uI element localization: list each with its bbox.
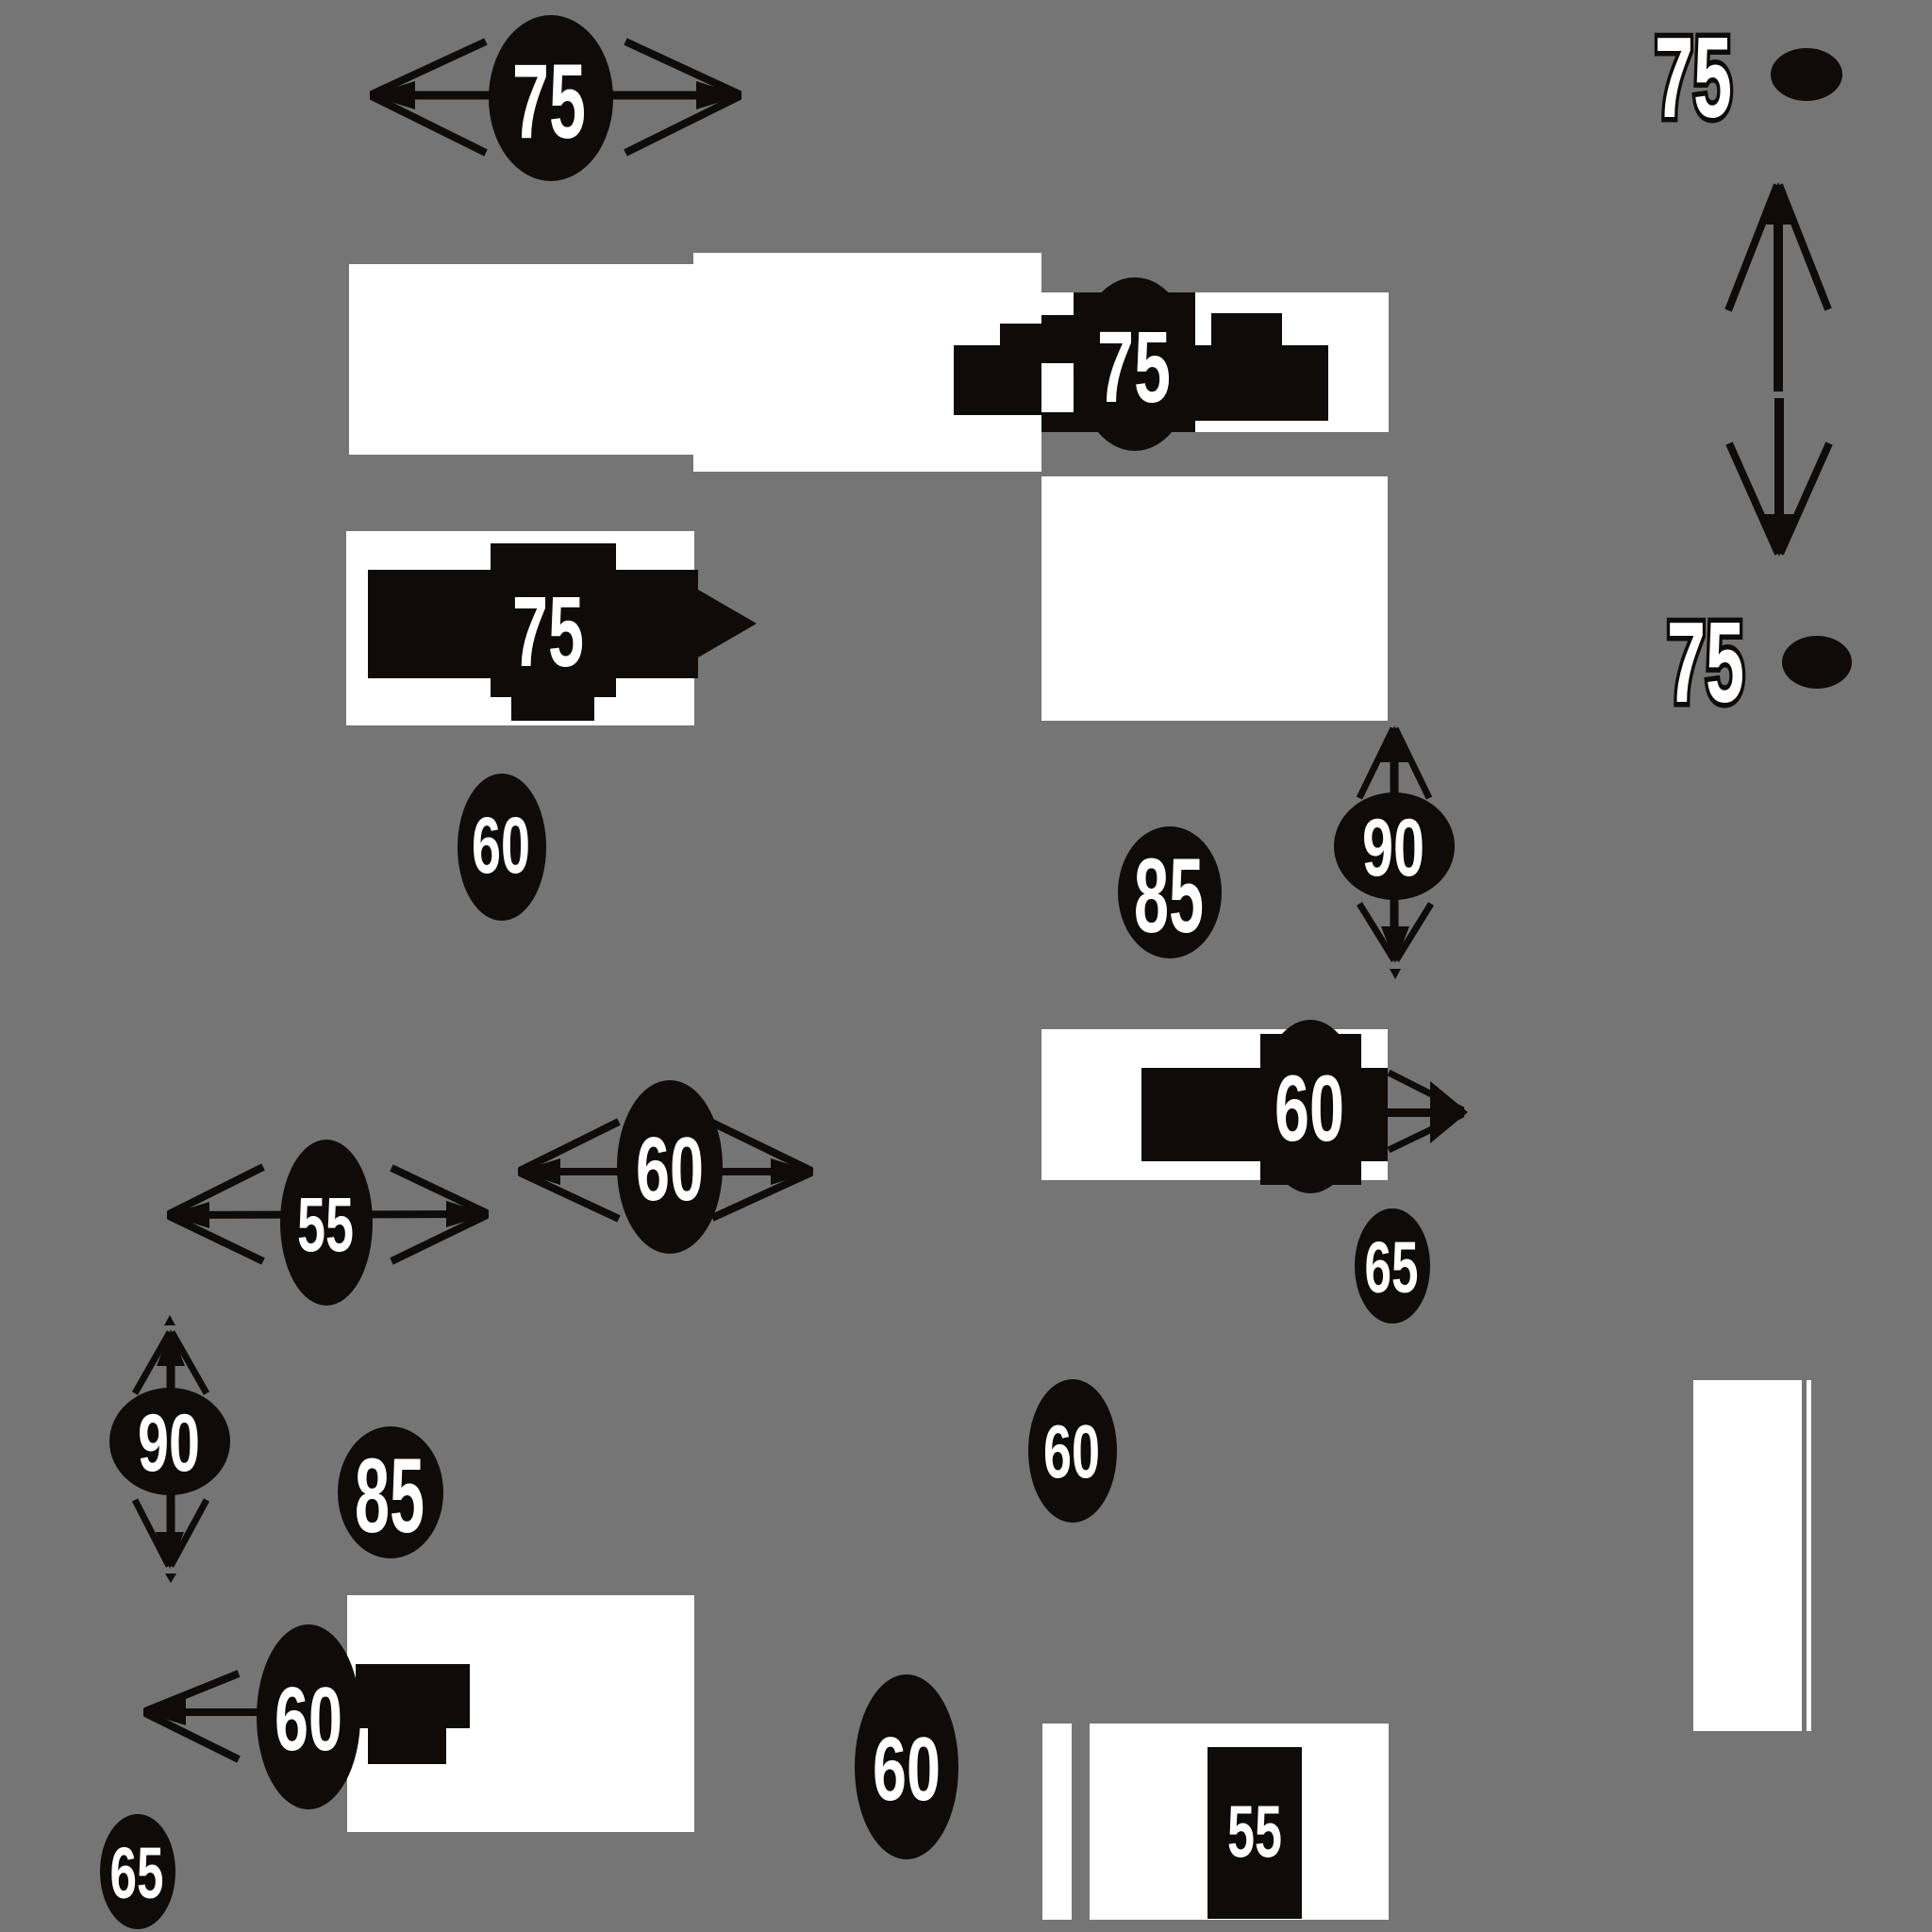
- svg-text:85: 85: [1134, 837, 1204, 955]
- svg-text:60: 60: [275, 1669, 342, 1770]
- svg-text:55: 55: [297, 1182, 354, 1268]
- svg-text:60: 60: [1274, 1056, 1344, 1160]
- svg-text:60: 60: [636, 1119, 704, 1220]
- svg-text:60: 60: [472, 801, 530, 890]
- svg-text:75: 75: [1667, 598, 1744, 726]
- svg-text:85: 85: [355, 1437, 425, 1555]
- svg-text:75: 75: [512, 42, 586, 160]
- svg-text:90: 90: [1362, 803, 1424, 893]
- svg-text:65: 65: [110, 1833, 164, 1914]
- svg-text:65: 65: [1365, 1227, 1419, 1308]
- svg-text:75: 75: [1097, 309, 1171, 424]
- svg-text:90: 90: [138, 1398, 200, 1489]
- svg-text:75: 75: [1655, 13, 1732, 142]
- svg-text:75: 75: [512, 576, 584, 688]
- svg-text:60: 60: [873, 1719, 941, 1820]
- svg-text:60: 60: [1043, 1409, 1100, 1493]
- svg-text:55: 55: [1227, 1790, 1282, 1873]
